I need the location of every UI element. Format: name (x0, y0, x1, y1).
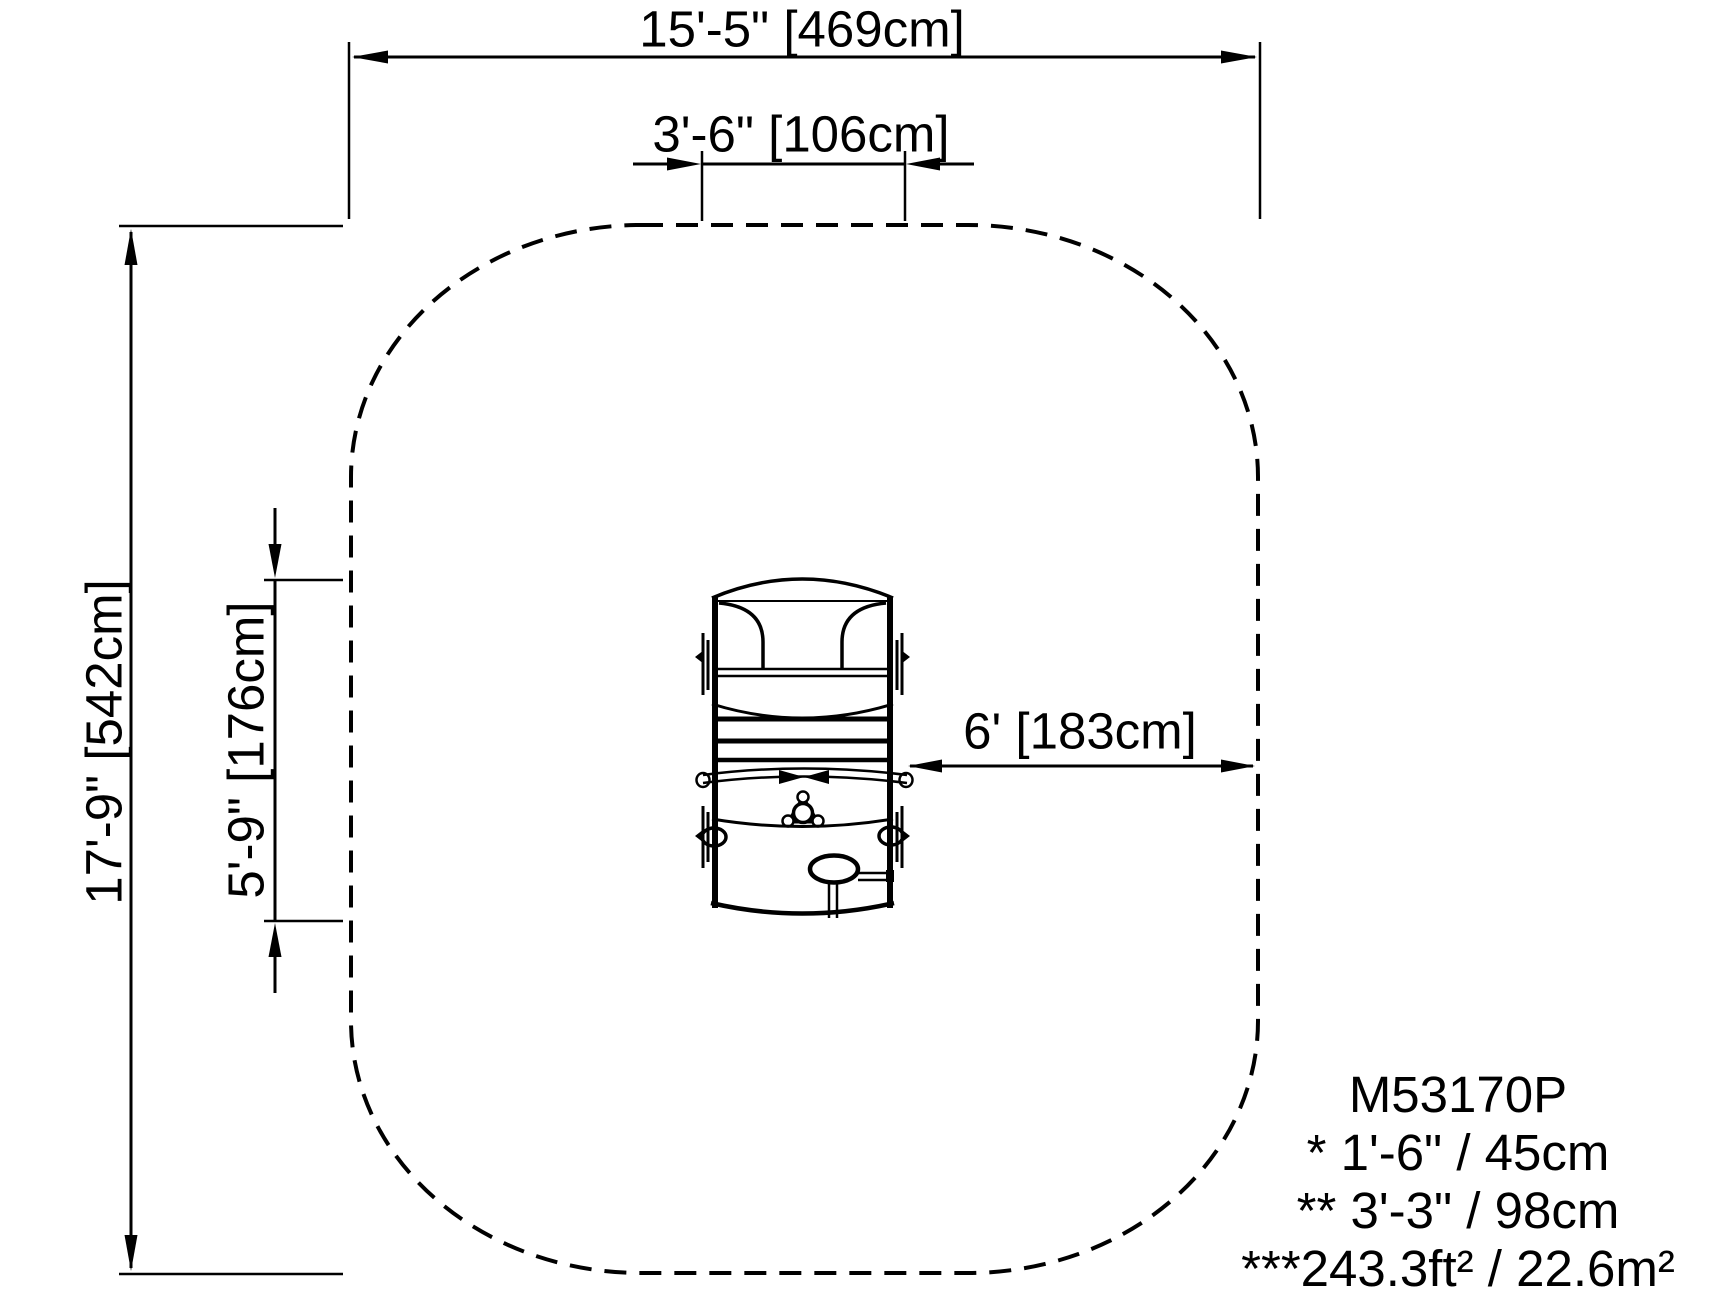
dim-use-zone-clearance (908, 760, 1255, 773)
arrowhead-left (352, 51, 388, 64)
dim-overall-depth-label: 17'-9" [542cm] (79, 579, 130, 905)
scalloped-panel-edge (703, 769, 907, 776)
mount-bracket-upper-left (695, 633, 708, 695)
dim-equipment-depth (264, 508, 343, 993)
bottom-edge-arc (711, 903, 894, 914)
arrowhead-right (1221, 51, 1257, 64)
arrowhead-left (908, 760, 942, 773)
dim-overall-width-label: 15'-5" [469cm] (639, 4, 965, 55)
dim-equipment-depth-label: 5'-9" [176cm] (221, 601, 272, 898)
dim-use-zone-clearance-label: 6' [183cm] (963, 706, 1197, 757)
dim-equipment-width-label: 3'-6" [106cm] (652, 109, 949, 160)
equipment-top-view (695, 579, 913, 918)
arrowhead-bottom (269, 923, 282, 957)
legend-note-3: ***243.3ft² / 22.6m² (1180, 1240, 1730, 1297)
table-top (810, 856, 858, 883)
table-arm-mount (886, 870, 894, 882)
seat-front-arc (712, 704, 893, 718)
seat-back-curve-right (842, 603, 886, 668)
spinner-lobe (798, 792, 809, 803)
arrowhead-up (125, 229, 138, 265)
seat-back-curve-left (719, 603, 763, 668)
arrowhead-down (125, 1235, 138, 1271)
playground-plan-drawing: 15'-5" [469cm] 3'-6" [106cm] 17'-9" [542… (0, 0, 1730, 1297)
canopy-arc (712, 579, 893, 598)
legend-note-1: * 1'-6" / 45cm (1180, 1124, 1730, 1182)
legend-block: M53170P * 1'-6" / 45cm ** 3'-3" / 98cm *… (1180, 1066, 1730, 1297)
panel-end-cap-left (697, 773, 710, 787)
center-marker (779, 770, 804, 784)
arrowhead-right (1221, 760, 1255, 773)
legend-note-2: ** 3'-3" / 98cm (1180, 1182, 1730, 1240)
scalloped-panel-edge (703, 777, 907, 784)
mount-bracket-lower-left (695, 806, 708, 868)
mount-bracket-lower-right (897, 806, 910, 868)
model-number: M53170P (1180, 1066, 1730, 1124)
mount-bracket-upper-right (897, 633, 910, 695)
center-marker (804, 770, 829, 784)
spinner-hub (794, 804, 813, 823)
arrowhead-top (269, 544, 282, 578)
